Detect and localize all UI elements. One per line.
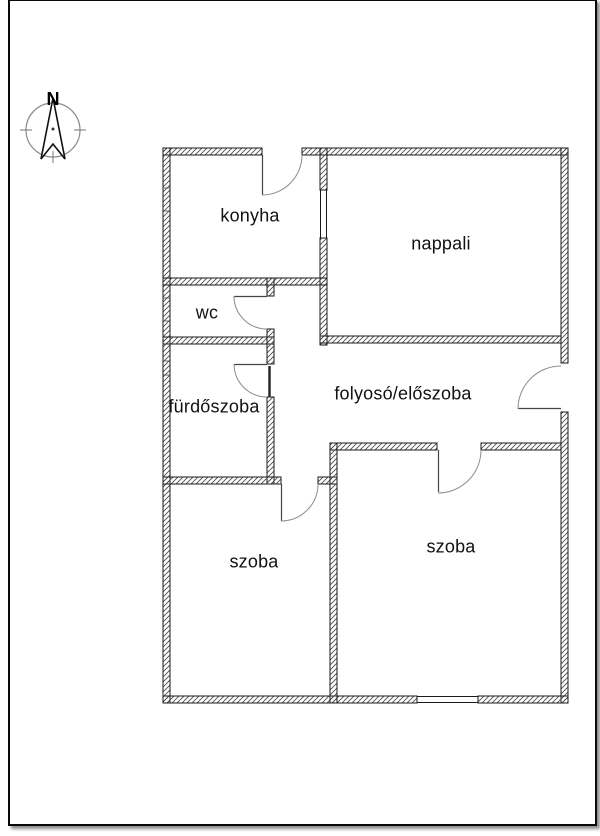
- floorplan-drawing: N: [0, 0, 600, 836]
- door-entrance: [518, 366, 561, 409]
- window-bottom-wall: [417, 697, 478, 703]
- room-label-folyoso: folyosó/előszoba: [334, 384, 471, 405]
- wall-szoba-right-top-b: [481, 443, 561, 450]
- room-label-szoba-right: szoba: [426, 537, 475, 558]
- walls: [163, 148, 568, 703]
- scanned-floorplan-page: N konyha nappali wc fürdőszoba folyosó/e…: [0, 0, 600, 836]
- door-konyha: [262, 155, 302, 195]
- wall-szoba-right-top-a: [330, 443, 437, 450]
- wall-top-left: [163, 148, 262, 155]
- wall-szoba-left-top-a: [163, 477, 281, 484]
- wall-wc-furdo: [163, 337, 274, 344]
- room-label-nappali: nappali: [411, 234, 470, 255]
- room-label-furdoszoba: fürdőszoba: [168, 397, 259, 418]
- wall-right-upper: [561, 148, 568, 363]
- wall-left: [163, 148, 170, 703]
- door-szoba-right: [438, 450, 481, 493]
- compass: N: [20, 89, 86, 163]
- room-label-konyha: konyha: [220, 206, 279, 227]
- room-label-wc: wc: [196, 303, 218, 324]
- wall-corridor-left-b: [267, 329, 274, 364]
- room-label-szoba-left: szoba: [229, 552, 278, 573]
- wall-top-right: [302, 148, 568, 155]
- window-konyha-nappali: [321, 190, 327, 238]
- wall-konyha-nappali-upper: [320, 148, 327, 190]
- door-furdoszoba: [234, 364, 270, 397]
- wall-szoba-divider: [330, 443, 337, 703]
- compass-center-dot: [52, 128, 55, 131]
- wall-right-lower: [561, 412, 568, 703]
- wall-konyha-nappali-lower: [320, 238, 327, 345]
- wall-konyha-bottom: [163, 278, 327, 285]
- wall-bottom-left: [163, 696, 417, 703]
- wall-bottom-right: [478, 696, 568, 703]
- door-szoba-left: [281, 484, 318, 521]
- compass-north-label: N: [47, 89, 60, 109]
- wall-corridor-left-c: [267, 397, 274, 484]
- wall-nappali-bottom: [320, 336, 561, 343]
- wall-corridor-left-a: [267, 278, 274, 296]
- door-wc: [234, 296, 267, 329]
